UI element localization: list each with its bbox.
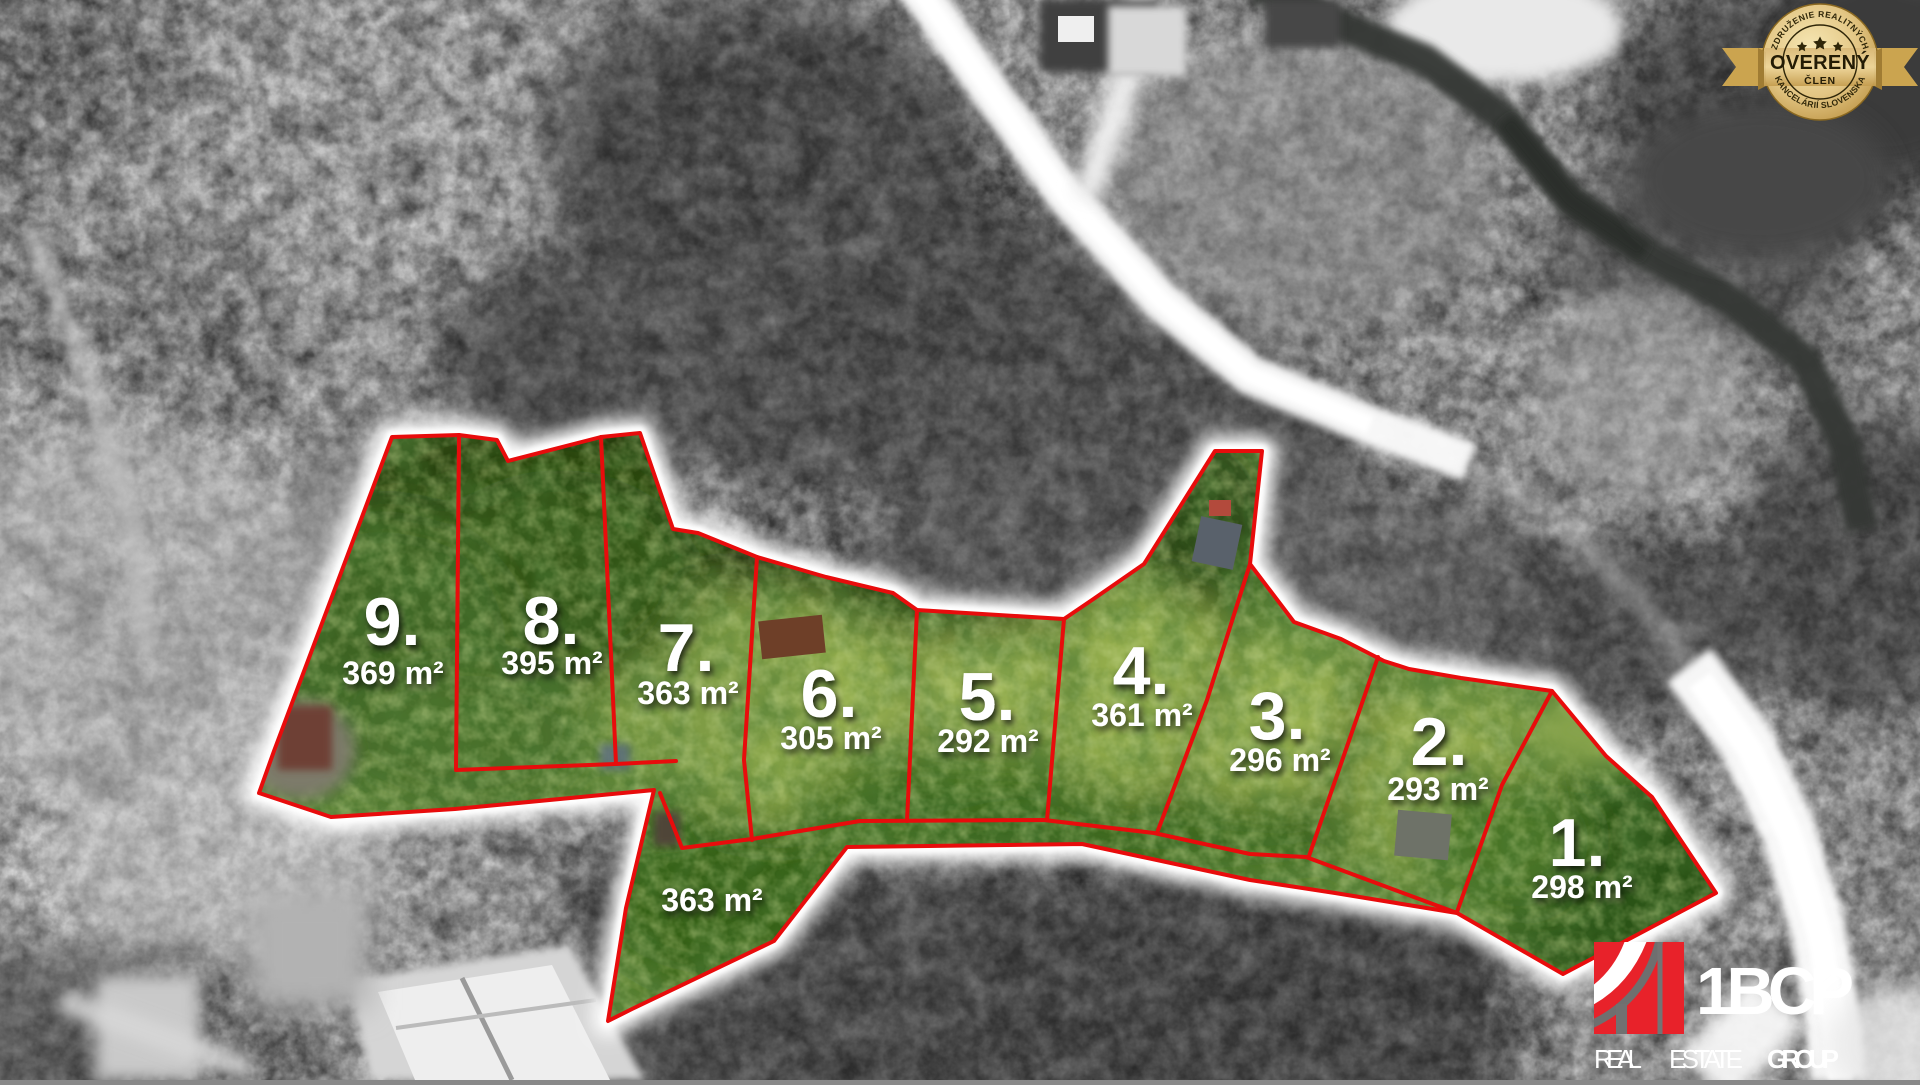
svg-text:293 m²: 293 m² <box>1387 771 1488 807</box>
svg-text:292 m²: 292 m² <box>937 723 1038 759</box>
svg-text:2.: 2. <box>1411 704 1468 780</box>
svg-text:296 m²: 296 m² <box>1229 742 1330 778</box>
svg-text:361 m²: 361 m² <box>1091 697 1192 733</box>
svg-text:363 m²: 363 m² <box>661 882 762 918</box>
svg-text:9.: 9. <box>364 584 421 660</box>
svg-text:ESTATE: ESTATE <box>1669 1044 1743 1074</box>
svg-text:REAL: REAL <box>1594 1044 1642 1074</box>
svg-text:305 m²: 305 m² <box>780 720 881 756</box>
svg-text:395 m²: 395 m² <box>501 645 602 681</box>
svg-text:OVERENÝ: OVERENÝ <box>1770 50 1870 74</box>
svg-text:298 m²: 298 m² <box>1531 869 1632 905</box>
svg-text:363 m²: 363 m² <box>637 675 738 711</box>
svg-text:1BCP: 1BCP <box>1696 954 1854 1029</box>
svg-text:369 m²: 369 m² <box>342 655 443 691</box>
svg-text:GROUP: GROUP <box>1767 1044 1839 1074</box>
svg-text:ČLEN: ČLEN <box>1804 74 1836 87</box>
